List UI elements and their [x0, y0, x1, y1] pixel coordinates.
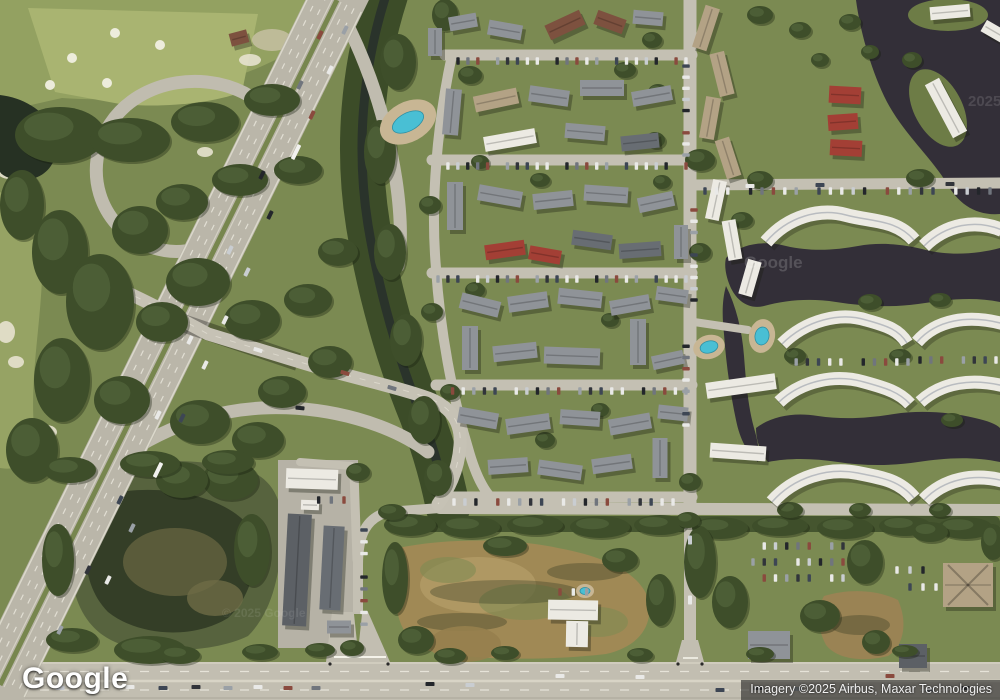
map-watermark: © 2025 Google [222, 606, 306, 620]
map-watermark: 2025 [968, 93, 1000, 110]
google-logo[interactable]: Google [22, 662, 128, 696]
imagery-attribution: Imagery ©2025 Airbus, Maxar Technologies [741, 680, 1000, 700]
satellite-map-viewport[interactable]: Google2025© 2025 Google Google Imagery ©… [0, 0, 1000, 700]
map-watermark: Google [744, 253, 803, 272]
satellite-imagery: Google2025© 2025 Google [0, 0, 1000, 700]
